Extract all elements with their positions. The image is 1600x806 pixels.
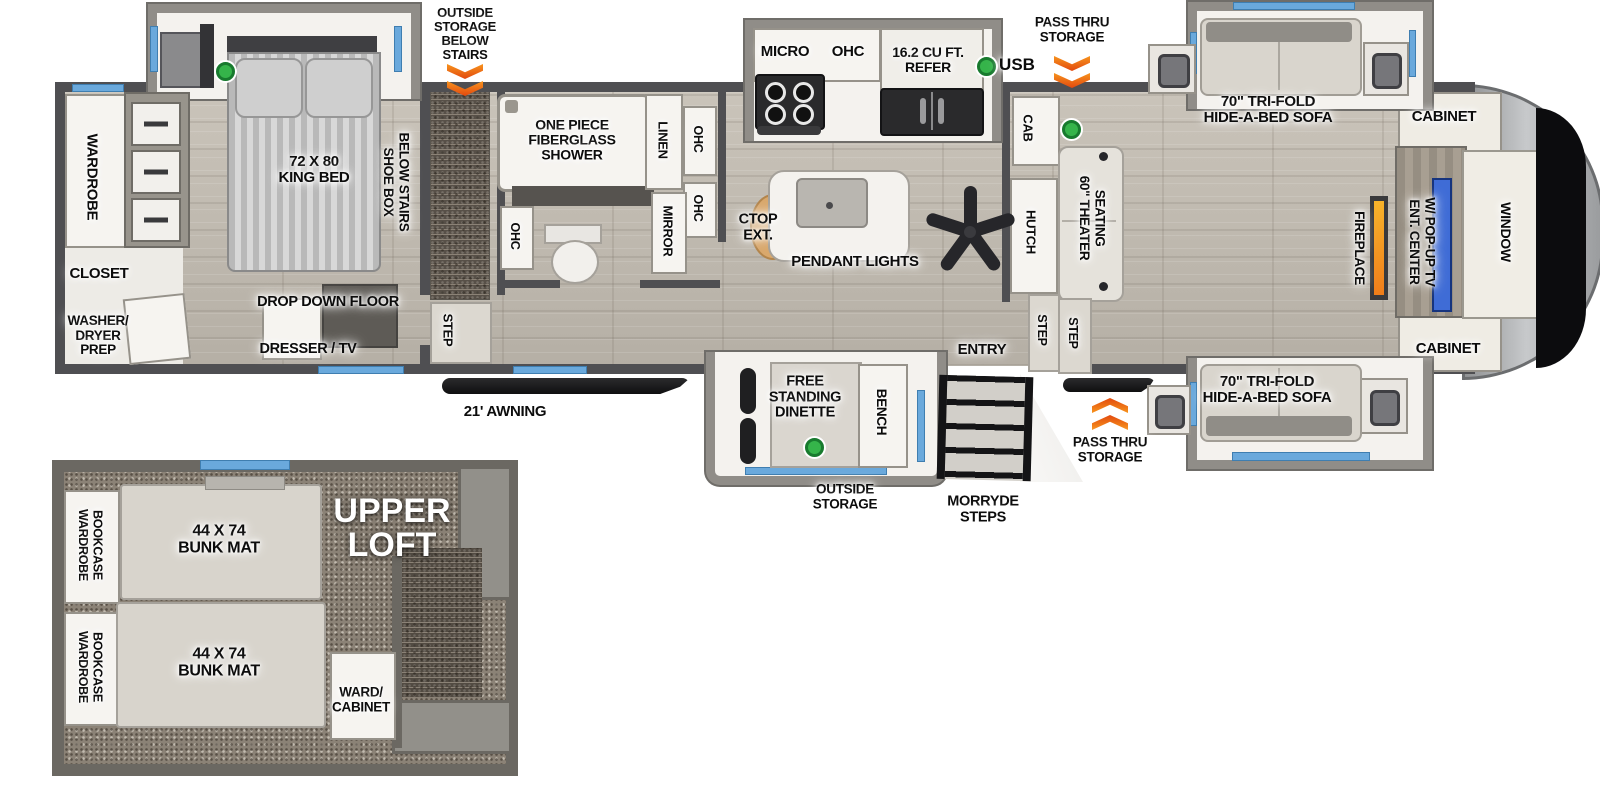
usb-dot [805, 438, 824, 457]
slide-side-window [1360, 378, 1408, 434]
chevron-icon [1092, 398, 1128, 413]
chevron-icon [1092, 415, 1128, 430]
slide-side-window [1363, 42, 1409, 96]
chevron-icon [447, 64, 483, 79]
morryde-steps-label: MORRYDE STEPS [947, 494, 1018, 525]
sofa-back [1206, 416, 1352, 436]
usb-dot [216, 62, 235, 81]
ctop-ext-label: CTOP EXT. [739, 212, 778, 243]
king-bed-headboard [227, 36, 377, 52]
cupholder-icon [1099, 282, 1108, 291]
chevron-icon [1054, 56, 1090, 71]
chevron-up-icon [1092, 398, 1128, 430]
mirror-label: MIRROR [660, 206, 675, 257]
bench-label: BENCH [873, 389, 889, 436]
bedroom-stairs [430, 90, 490, 300]
burner-icon [793, 104, 814, 125]
bedroom-step-label: STEP [440, 314, 455, 347]
wardrobe-label: WARDROBE [83, 134, 100, 221]
dinette-label: FREE STANDING DINETTE [769, 375, 841, 422]
dinette-chair [740, 368, 756, 414]
burner-icon [765, 104, 786, 125]
sofa-back [1206, 22, 1352, 42]
refer-seam [931, 92, 933, 130]
toilet-bowl [551, 240, 599, 284]
ceiling-fan [920, 182, 1020, 282]
window-pane-icon [1372, 53, 1402, 89]
wardrobe-drawers [124, 92, 190, 248]
refer-handle [938, 98, 944, 124]
window-pane-icon [1155, 395, 1185, 429]
bunk-latch [205, 476, 285, 490]
ohc-label: OHC [691, 195, 705, 222]
pass-thru-storage-label-bottom: PASS THRU STORAGE [1073, 435, 1147, 464]
window-accent [513, 366, 587, 374]
sink-faucet [826, 202, 833, 209]
dinette-chair [740, 418, 756, 464]
window-accent [150, 26, 158, 72]
drawer-handle [144, 122, 168, 127]
window-label: WINDOW [1498, 202, 1514, 262]
upper-loft-label: UPPER LOFT [333, 494, 450, 562]
ohc-label: OHC [691, 126, 705, 153]
drawer-handle [144, 218, 168, 223]
stove-grill [757, 126, 821, 135]
window-accent [394, 26, 402, 72]
slide-side-window [1148, 44, 1196, 94]
bedroom-divider-wall [420, 90, 430, 295]
window-pane-icon [1158, 54, 1190, 88]
fireplace-flame [1374, 201, 1384, 295]
windshield [1536, 108, 1586, 368]
dresser-tv-label: DRESSER / TV [259, 342, 356, 358]
chevron-down-icon [1054, 56, 1090, 88]
drawer [131, 102, 181, 146]
refrigerator [880, 88, 984, 136]
sofa-top [1200, 18, 1362, 96]
entry-label: ENTRY [958, 342, 1007, 358]
shower-head [505, 100, 518, 113]
cupholder-icon [1099, 152, 1108, 161]
window-accent [1232, 452, 1370, 461]
window-accent [200, 460, 290, 470]
king-bed-label: 72 X 80 KING BED [279, 154, 350, 186]
chevron-icon [447, 81, 483, 96]
outside-storage-label: OUTSIDE STORAGE [813, 482, 877, 511]
window-accent [745, 467, 887, 475]
hutch-label: HUTCH [1023, 210, 1038, 254]
loft-platform [392, 700, 512, 754]
cab-label: CAB [1020, 114, 1035, 141]
shoe-box-label: SHOE BOX BELOW STAIRS [380, 133, 411, 232]
outside-storage-below-stairs-label: OUTSIDE STORAGE BELOW STAIRS [434, 6, 496, 62]
ward-cabinet-label: WARD/ CABINET [332, 685, 390, 714]
floorplan-canvas: WARDROBE 72 X 80 KING BED SHOE BOX BELOW… [0, 0, 1600, 806]
ent-center-label: ENT. CENTER W/ POP-UP TV [1406, 197, 1437, 286]
window-pane-icon [1370, 390, 1400, 426]
bedroom-tv-mount [200, 24, 214, 88]
awning-bar [1063, 378, 1155, 392]
bunk-mat-label: 44 X 74 BUNK MAT [178, 523, 260, 558]
theater-seating-label: 60" THEATER SEATING [1076, 176, 1107, 261]
awning-bar [442, 378, 690, 394]
drawer [131, 198, 181, 242]
fireplace-label: FIREPLACE [1351, 211, 1367, 285]
usb-legend-dot [977, 57, 996, 76]
fan-hub-icon [964, 226, 976, 238]
drawer [131, 150, 181, 194]
awning-label: 21' AWNING [464, 404, 547, 420]
wardrobe-bookcase-label: WARDROBE BOOKCASE [76, 509, 105, 581]
refer-handle [920, 98, 926, 124]
left-wall [55, 82, 65, 374]
linen-label: LINEN [655, 121, 670, 159]
stove [755, 74, 825, 130]
shower-label: ONE PIECE FIBERGLASS SHOWER [528, 117, 615, 162]
trifold-sofa-label-top: 70" TRI-FOLD HIDE-A-BED SOFA [1204, 94, 1333, 126]
window-accent [1190, 382, 1197, 426]
bunk-mat-label: 44 X 74 BUNK MAT [178, 646, 260, 681]
window-accent [1409, 30, 1416, 77]
bedroom-divider-stub [420, 345, 430, 372]
micro-label: MICRO [761, 44, 810, 60]
ohc-label: OHC [832, 44, 864, 60]
washer-dryer-label: WASHER/ DRYER PREP [68, 314, 129, 358]
window-accent [1233, 2, 1355, 10]
ohc-label: OHC [508, 223, 522, 250]
washer-dryer-unit [123, 293, 192, 365]
window-accent [917, 390, 925, 462]
step-label: STEP [1035, 314, 1049, 345]
window-accent [72, 84, 124, 92]
wardrobe-bookcase-label: WARDROBE BOOKCASE [76, 631, 105, 703]
bath-bottom-wall-a [505, 280, 560, 288]
pendant-lights-label: PENDANT LIGHTS [791, 254, 918, 270]
burner-icon [793, 82, 814, 103]
drop-down-floor-label: DROP DOWN FLOOR [257, 295, 399, 311]
step-label: STEP [1066, 317, 1080, 348]
bath-bottom-wall-b [640, 280, 720, 288]
chevron-icon [1054, 73, 1090, 88]
bath-kitchen-wall [718, 90, 726, 242]
window-accent [318, 366, 404, 374]
refer-label: 16.2 CU FT. REFER [892, 45, 963, 75]
morryde-steps-ladder [937, 375, 1034, 481]
bath-vanity [512, 186, 654, 206]
loft-stairs [402, 548, 482, 698]
drawer-handle [144, 170, 168, 175]
closet-label: CLOSET [69, 266, 128, 282]
usb-legend-label: USB [999, 56, 1035, 74]
bedroom-tv [160, 32, 204, 88]
bed-pillow [305, 58, 373, 118]
usb-dot [1062, 120, 1081, 139]
chevron-down-icon [447, 64, 483, 96]
cabinet-label-top: CABINET [1412, 109, 1477, 125]
bed-pillow [235, 58, 303, 118]
pass-thru-storage-label-top: PASS THRU STORAGE [1035, 15, 1109, 44]
trifold-sofa-label-bottom: 70" TRI-FOLD HIDE-A-BED SOFA [1203, 374, 1332, 406]
sofa-seam [1278, 42, 1280, 90]
burner-icon [765, 82, 786, 103]
slide-side-window [1147, 385, 1191, 435]
cabinet-label-bottom: CABINET [1416, 341, 1481, 357]
